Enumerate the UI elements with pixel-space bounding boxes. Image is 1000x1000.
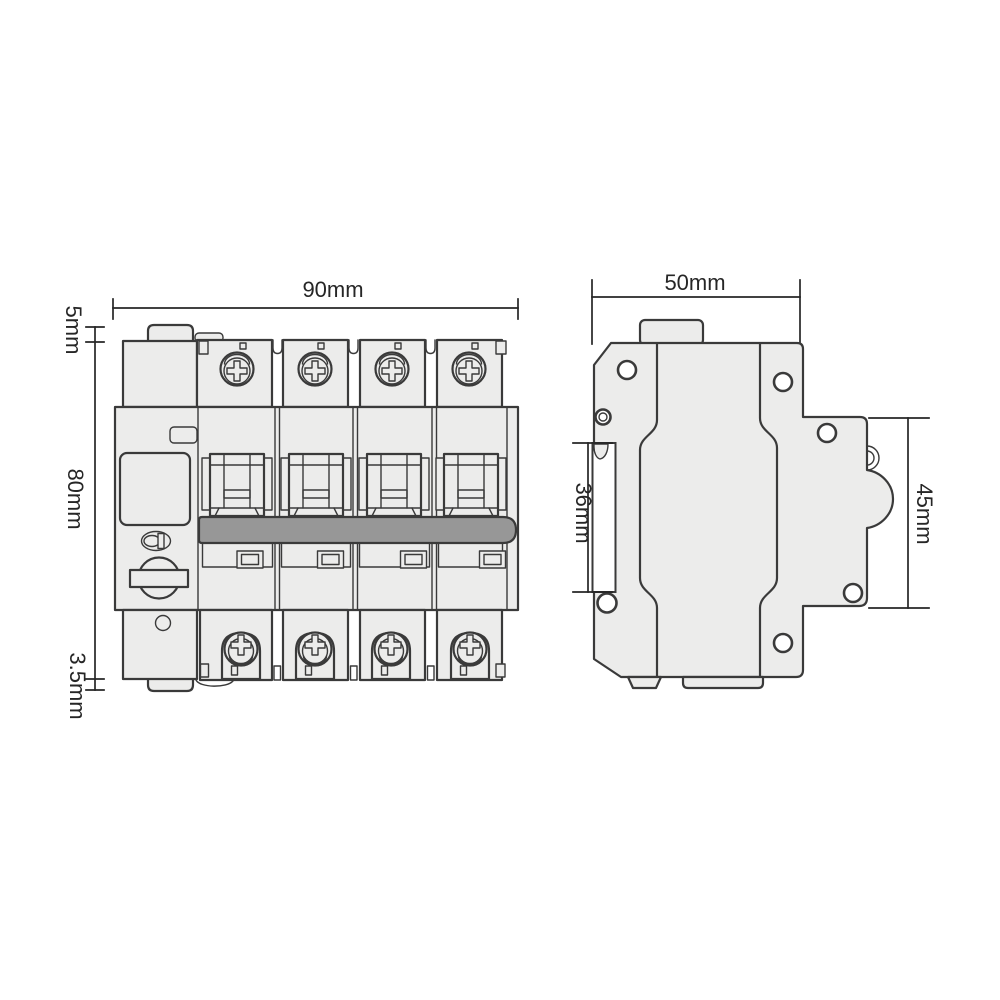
- screw-hole: [618, 361, 636, 379]
- screw-hole: [844, 584, 862, 602]
- bottom-terminal-1: [200, 610, 272, 680]
- side-bottom-tab-left: [628, 677, 661, 688]
- test-switch: [142, 532, 171, 551]
- rcd-module: [120, 427, 197, 599]
- screw-hole: [774, 634, 792, 652]
- side-width-label: 50mm: [664, 270, 725, 295]
- terminal-notch: [426, 340, 435, 354]
- clamp-hook: [201, 664, 209, 677]
- side-slot-label: 36mm: [571, 482, 596, 543]
- top-terminal-1: [197, 340, 272, 407]
- drawing-canvas: 90mm 5mm 80mm 3.5mm: [0, 0, 1000, 1000]
- bottom-terminal-4: [437, 610, 505, 680]
- clamp-hook: [496, 664, 505, 677]
- rating-window: [480, 551, 506, 568]
- rcd-label-window: [120, 453, 190, 525]
- bottom-terminal-2: [283, 610, 348, 680]
- terminal-notch: [273, 340, 282, 354]
- terminal-notch: [274, 666, 281, 680]
- pole-4-toggle: [436, 454, 506, 516]
- toggle-lever-side: [867, 446, 879, 470]
- terminal-notch: [351, 666, 358, 680]
- front-top-tab-label: 5mm: [61, 306, 86, 355]
- screw-hole: [598, 594, 617, 613]
- clamp-hook: [496, 341, 506, 354]
- rating-window: [318, 551, 344, 568]
- terminal-notch: [428, 666, 435, 680]
- dimension-drawing: 90mm 5mm 80mm 3.5mm: [0, 0, 1000, 1000]
- bottom-terminal-3: [360, 610, 425, 680]
- breaker-front-body: [115, 325, 518, 691]
- screw-hole: [818, 424, 836, 442]
- rating-window: [401, 551, 427, 568]
- side-top-tab: [640, 320, 703, 345]
- side-bottom-tab-center: [683, 677, 763, 688]
- breaker-side-body: [593, 320, 894, 688]
- rating-window: [237, 551, 263, 568]
- front-width-dimension: 90mm: [113, 277, 518, 319]
- side-view: 50mm: [571, 270, 937, 688]
- terminal-notch: [349, 340, 358, 354]
- front-view: 90mm 5mm 80mm 3.5mm: [61, 277, 518, 720]
- rcd-bottom-block: [123, 610, 197, 679]
- rcd-top-block: [123, 341, 197, 407]
- front-width-label: 90mm: [302, 277, 363, 302]
- top-terminal-2: [283, 340, 348, 407]
- handle-tie-bar: [199, 517, 516, 543]
- clamp-hook: [199, 341, 208, 354]
- top-terminal-4: [437, 340, 506, 407]
- seal-eyelet: [596, 410, 611, 425]
- pole-1-toggle: [202, 454, 272, 516]
- side-outline: [594, 343, 893, 677]
- pole-2-toggle: [281, 454, 351, 516]
- screw-hole: [774, 373, 792, 391]
- front-bottom-tab-label: 3.5mm: [65, 652, 90, 719]
- rcd-side-tab: [170, 427, 197, 443]
- top-terminal-3: [360, 340, 425, 407]
- front-body-height-label: 80mm: [63, 468, 88, 529]
- pole-3-toggle: [359, 454, 429, 516]
- side-front-section-label: 45mm: [912, 483, 937, 544]
- front-height-dimension: 5mm 80mm 3.5mm: [61, 306, 104, 720]
